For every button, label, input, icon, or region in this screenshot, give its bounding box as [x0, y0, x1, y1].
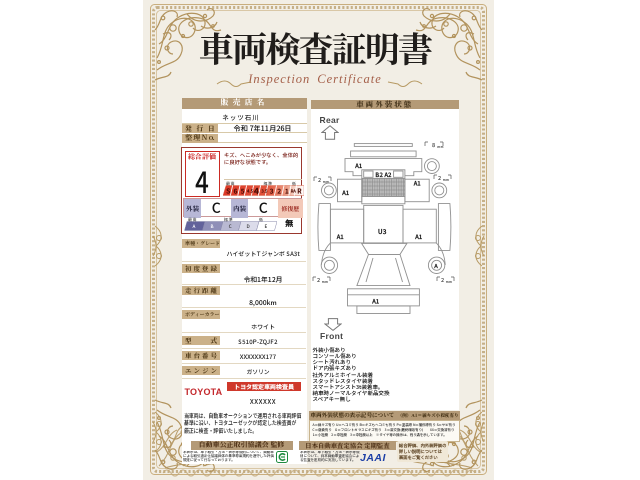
svg-text:A1: A1: [371, 297, 380, 306]
svg-text:A: A: [433, 262, 438, 270]
svg-text:U3: U3: [377, 226, 387, 236]
svg-text:E: E: [265, 224, 268, 230]
svg-text:B2 A2: B2 A2: [376, 170, 393, 179]
svg-text:2: 2: [438, 174, 441, 182]
svg-text:mm: mm: [323, 180, 330, 185]
svg-text:A1: A1: [336, 232, 345, 241]
svg-text:RA: RA: [290, 189, 296, 195]
svg-text:8: 8: [432, 141, 435, 149]
svg-text:D: D: [247, 224, 250, 230]
svg-text:C: C: [229, 224, 232, 230]
svg-text:A: A: [193, 224, 196, 230]
svg-text:A1: A1: [413, 179, 422, 188]
svg-text:A1: A1: [341, 188, 350, 197]
svg-text:2: 2: [317, 276, 320, 284]
svg-text:3.5: 3.5: [261, 189, 268, 195]
svg-text:6: 6: [233, 185, 237, 195]
svg-text:1: 1: [285, 185, 289, 195]
svg-text:4: 4: [253, 185, 259, 196]
svg-text:5: 5: [239, 185, 244, 195]
svg-text:2: 2: [441, 276, 444, 284]
svg-text:mm: mm: [437, 145, 444, 150]
svg-text:3: 3: [269, 185, 273, 195]
svg-text:mm: mm: [322, 280, 329, 285]
svg-text:A1: A1: [414, 232, 423, 241]
svg-text:mm: mm: [443, 178, 450, 183]
svg-text:2: 2: [318, 176, 321, 184]
svg-text:mm: mm: [446, 280, 453, 285]
svg-text:A1: A1: [354, 161, 363, 170]
svg-text:2: 2: [277, 185, 281, 195]
svg-text:B: B: [211, 224, 214, 230]
svg-text:4.5: 4.5: [246, 189, 254, 195]
